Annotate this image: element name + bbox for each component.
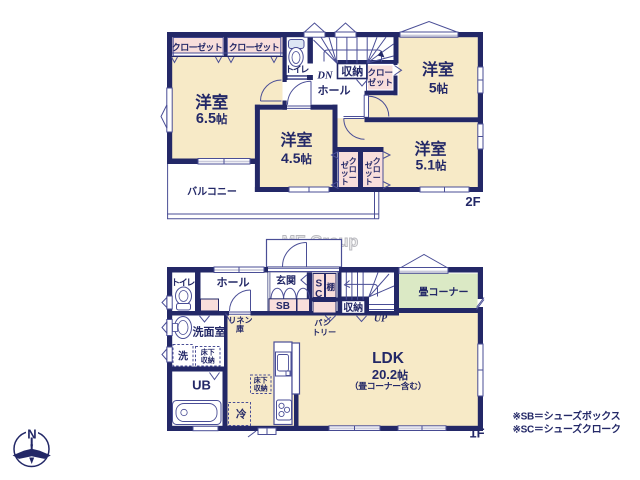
- svg-text:洋室: 洋室: [195, 92, 228, 112]
- svg-text:ゼット: ゼット: [341, 160, 349, 186]
- svg-text:クローゼット: クローゼット: [229, 42, 279, 53]
- svg-text:1F: 1F: [469, 426, 484, 441]
- svg-text:SB: SB: [276, 301, 290, 312]
- svg-text:畳コーナー: 畳コーナー: [419, 287, 469, 299]
- svg-text:パン: パン: [314, 318, 330, 328]
- svg-text:庫: 庫: [236, 324, 244, 334]
- svg-text:S: S: [315, 278, 322, 289]
- svg-text:洗面室: 洗面室: [193, 325, 226, 339]
- svg-text:洗: 洗: [178, 350, 188, 363]
- svg-text:LDK: LDK: [372, 350, 405, 367]
- svg-text:収納: 収納: [341, 64, 363, 78]
- svg-text:玄関: 玄関: [276, 274, 296, 287]
- svg-text:クローゼット: クローゼット: [172, 42, 222, 53]
- svg-text:収納: 収納: [254, 384, 268, 393]
- svg-text:DN: DN: [316, 70, 333, 81]
- svg-text:クロー: クロー: [349, 156, 357, 182]
- svg-text:20.2帖: 20.2帖: [372, 367, 408, 382]
- svg-text:床下: 床下: [201, 348, 215, 357]
- svg-text:棚: 棚: [326, 282, 335, 292]
- svg-text:ゼット: ゼット: [368, 78, 394, 88]
- svg-text:2F: 2F: [465, 194, 480, 209]
- svg-text:洋室: 洋室: [280, 131, 312, 150]
- svg-text:リネン: リネン: [229, 315, 253, 325]
- svg-text:収納: 収納: [201, 356, 215, 365]
- svg-text:トイレ: トイレ: [285, 65, 309, 75]
- svg-text:UB: UB: [192, 378, 211, 393]
- svg-text:ホール: ホール: [318, 84, 351, 97]
- svg-text:ホール: ホール: [217, 276, 250, 289]
- svg-text:6.5帖: 6.5帖: [196, 111, 228, 127]
- svg-text:※SB＝シューズボックス: ※SB＝シューズボックス: [513, 410, 621, 423]
- svg-text:（畳コーナー含む）: （畳コーナー含む）: [350, 380, 426, 391]
- svg-text:冷: 冷: [236, 408, 247, 421]
- svg-text:C: C: [315, 289, 322, 300]
- svg-text:クロー: クロー: [373, 156, 381, 182]
- svg-text:ゼット: ゼット: [365, 160, 373, 186]
- svg-text:床下: 床下: [254, 376, 268, 385]
- svg-text:トリー: トリー: [312, 328, 336, 337]
- svg-text:UP: UP: [374, 313, 388, 324]
- svg-text:トイレ: トイレ: [171, 278, 195, 288]
- svg-text:洋室: 洋室: [422, 60, 454, 79]
- svg-text:収納: 収納: [343, 301, 363, 314]
- svg-text:バルコニー: バルコニー: [187, 186, 237, 198]
- svg-text:※SC＝シューズクローク: ※SC＝シューズクローク: [513, 423, 621, 436]
- svg-text:クロー: クロー: [368, 68, 394, 78]
